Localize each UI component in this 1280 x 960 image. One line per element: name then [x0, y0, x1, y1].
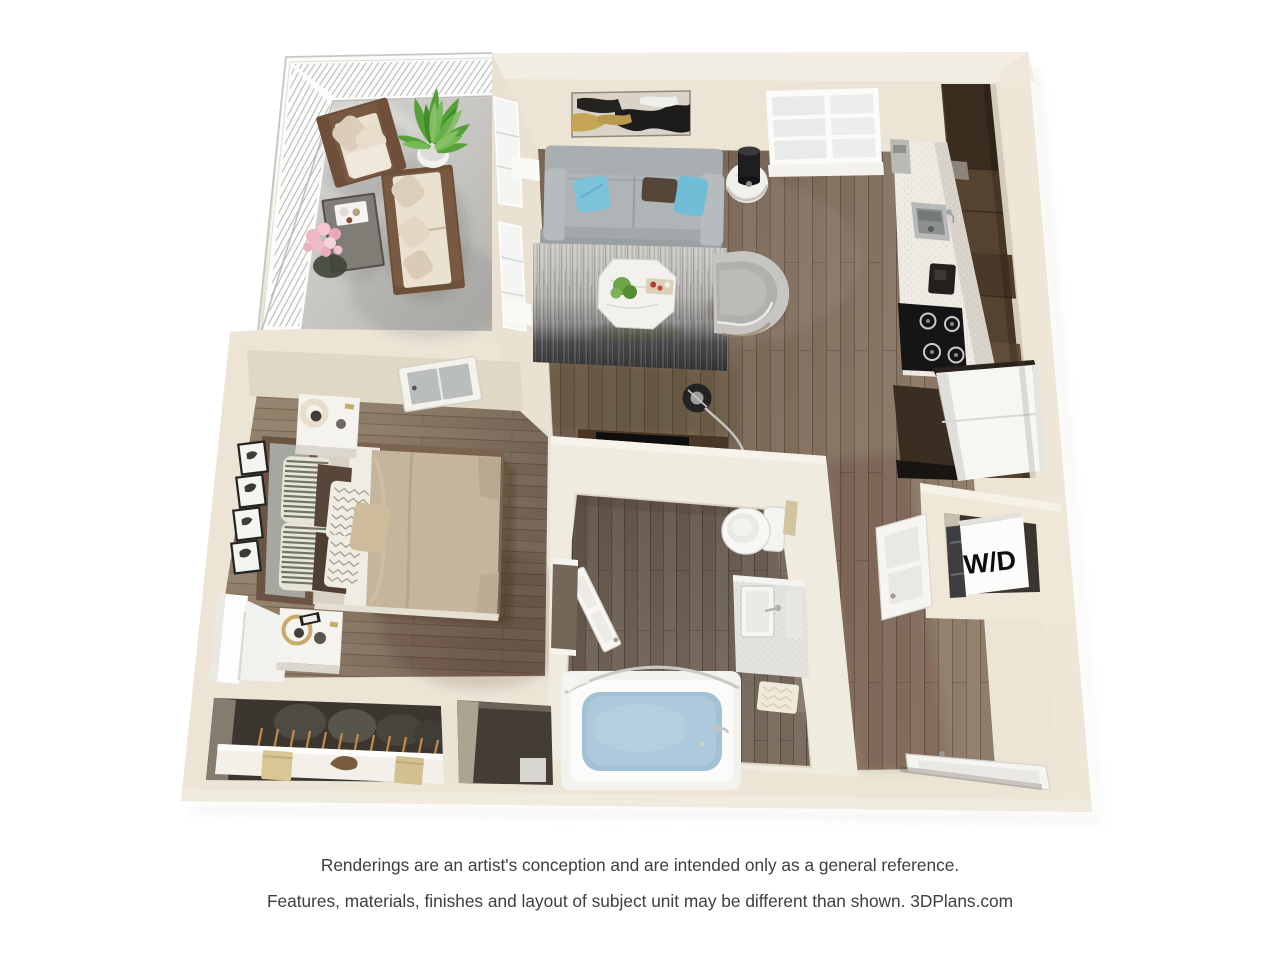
svg-text:W/D: W/D — [962, 545, 1017, 580]
